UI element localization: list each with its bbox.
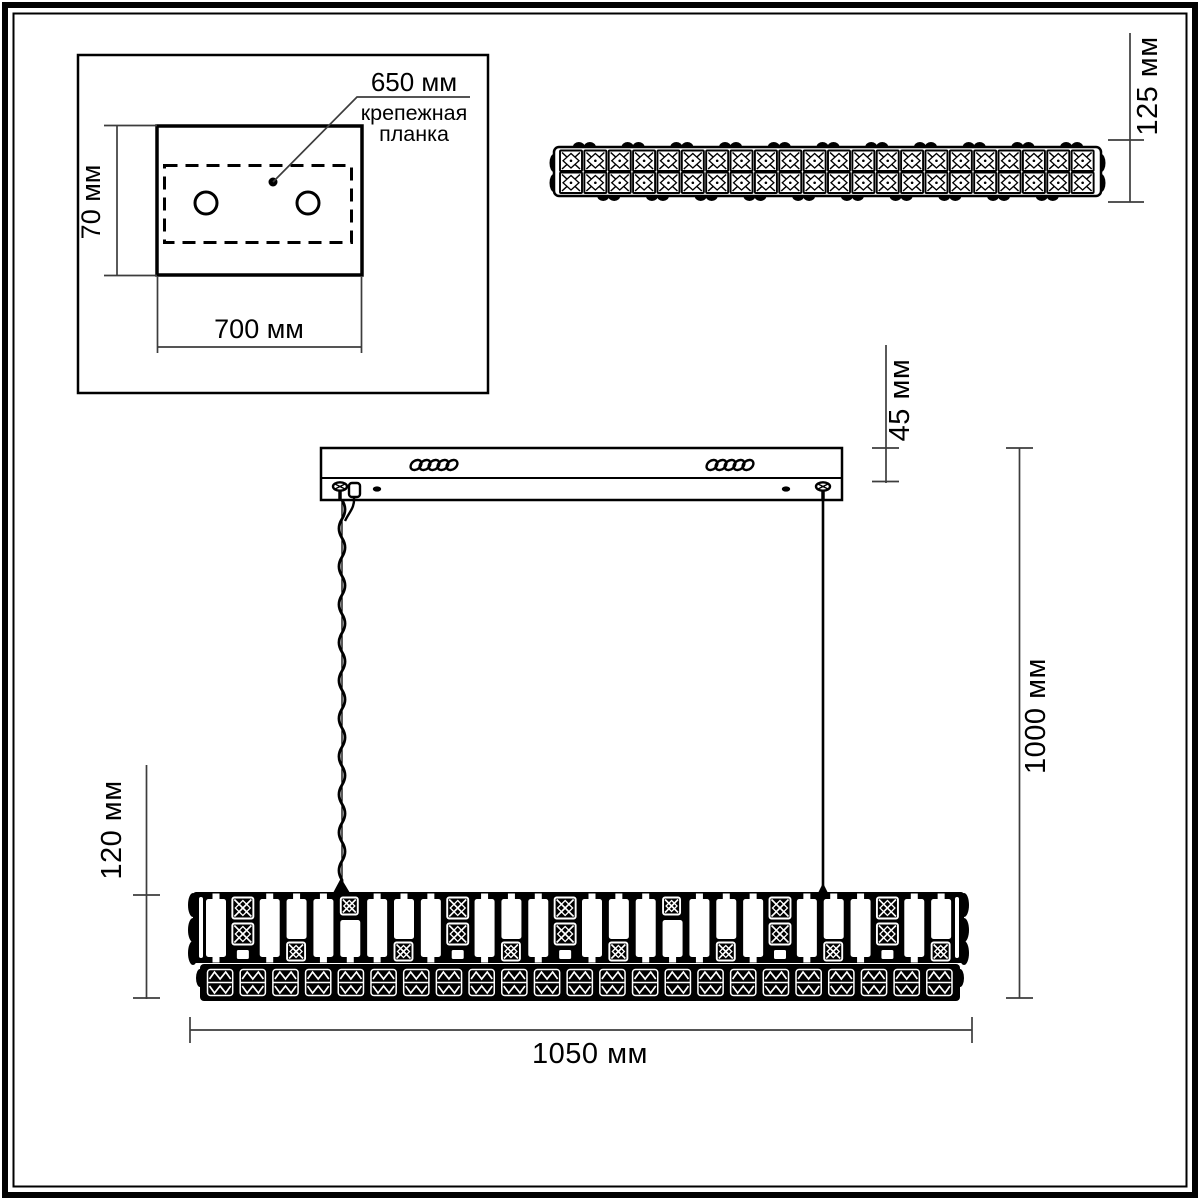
fixture-front-view: 45 мм 1000 мм 120 мм 1050 мм [96,345,1052,1070]
prism-tab [642,894,649,901]
crystal-cell [447,898,468,919]
crystal-cell [633,173,655,194]
mounting-plate-panel: 650 мм крепежная планка 70 мм 700 мм [76,55,488,393]
prism-stub [452,950,464,959]
canopy-height-dim-label: 45 мм [884,359,916,442]
crystal-cell [303,967,333,998]
prism-slot [689,899,709,957]
prism-tab [481,894,488,901]
prism-tab [696,894,703,901]
crystal-cell [232,898,253,919]
prism-slot [904,899,924,957]
crystal-cell [270,967,300,998]
crystal-cell [609,151,631,172]
prism-stub [559,950,571,959]
canopy-width-label: 700 мм [214,314,304,344]
crystal-cell [779,173,801,194]
prism-slot [313,899,333,957]
pendant-light-dimension-drawing: 650 мм крепежная планка 70 мм 700 мм 125… [0,0,1200,1200]
crystal-cell [560,151,582,172]
crystal-cell [901,151,923,172]
crystal-cell [755,173,777,194]
crystal-cell [395,943,413,961]
prism-tab [830,894,837,901]
crystal-cell [467,967,497,998]
crystal-cell [609,173,631,194]
crystal-cell [877,898,898,919]
crystal-cell [663,967,693,998]
crystal-cell [852,173,874,194]
crystal-cell [761,967,791,998]
screw-hole-right [297,192,319,214]
prism-tab [911,894,918,901]
prism-tab [401,894,408,901]
crystal-cell [999,151,1021,172]
prism-slot [582,899,602,957]
prism-stub [774,950,786,959]
prism-slot [367,899,387,957]
prism-tab [213,894,220,901]
crystal-cell [447,924,468,945]
crystal-cell [657,173,679,194]
crystal-cell [731,173,753,194]
crystal-cell [584,173,606,194]
crystal-cell [532,967,562,998]
crystal-cell [1023,173,1045,194]
prism-slot [421,899,441,957]
crystal-cell [706,173,728,194]
crystal-cell [695,967,725,998]
crystal-cell [824,943,842,961]
prism-tab [535,956,542,963]
prism-tab [266,894,273,901]
ceiling-canopy [321,448,842,500]
crystal-cell [755,151,777,172]
prism-slot [636,899,656,957]
crystal-cell [663,898,680,915]
crystal-cell [565,967,595,998]
crystal-cell [401,967,431,998]
lower-band-crystal-pattern [205,967,955,998]
prism-tab [938,894,945,901]
crystal-cell [682,173,704,194]
prism-tab [696,956,703,963]
band-edge-highlight [955,897,959,958]
prism-slot [824,899,844,939]
prism-tab [374,894,381,901]
crystal-cell [828,151,850,172]
crystal-cell [1072,151,1094,172]
prism-slot [716,899,736,939]
rivet-dot-left [373,486,381,491]
crystal-cell [852,151,874,172]
prism-tab [266,956,273,963]
prism-tab [589,894,596,901]
crystal-cell [804,151,826,172]
cord-fitting [349,483,360,497]
crystal-cell [336,967,366,998]
prism-slot [663,920,683,957]
prism-tab [427,956,434,963]
prism-tab [347,956,354,963]
fixture-side-view: 125 мм [550,33,1165,202]
fixture-width-dim-label: 1050 мм [532,1038,648,1070]
prism-tab [750,956,757,963]
suspension-height-dim-label: 1000 мм [1020,658,1052,774]
prism-slot [609,899,629,939]
crystal-cell [770,898,791,919]
prism-tab [508,894,515,901]
prism-tab [481,956,488,963]
prism-slot [287,899,307,939]
crystal-cell [633,151,655,172]
prism-tab [803,894,810,901]
prism-slot [340,920,360,957]
crystal-cell [341,898,358,915]
prism-tab [750,894,757,901]
prism-tab [669,956,676,963]
crystal-cell [770,924,791,945]
crystal-cell [731,151,753,172]
crystal-cell [1072,173,1094,194]
crystal-cell [368,967,398,998]
prism-slot [851,899,871,957]
prism-tab [213,956,220,963]
prism-stub [237,950,249,959]
crystal-cell [925,151,947,172]
prism-tab [723,894,730,901]
strap-name-line2: планка [379,122,449,146]
crystal-cell [974,151,996,172]
crystal-cell [877,151,899,172]
crystal-cell [826,967,856,998]
crystal-cell [499,967,529,998]
crystal-cell [932,943,950,961]
crystal-cell [1047,173,1069,194]
crystal-cell [779,151,801,172]
prism-tab [803,956,810,963]
crystal-cell [609,943,627,961]
crystal-cell [950,151,972,172]
crystal-cell [555,898,576,919]
crystal-cell [1047,151,1069,172]
prism-tab [427,894,434,901]
crystal-cell [925,173,947,194]
canopy-height-label: 70 мм [76,165,106,240]
prism-slot [743,899,763,957]
prism-tab [374,956,381,963]
crystal-cell [804,173,826,194]
rivet-dot-right [782,486,790,491]
crystal-cell [794,967,824,998]
crystal-cell [630,967,660,998]
prism-tab [642,956,649,963]
prism-slot [475,899,495,957]
side-view-height-label: 125 мм [1132,36,1164,135]
crystal-cell [434,967,464,998]
prism-slot [931,899,951,939]
wire-entry-flare [818,883,828,893]
prism-tab [857,894,864,901]
cord-entry-flare [333,878,350,893]
crystal-cell [555,924,576,945]
prism-slot [797,899,817,957]
crystal-cell [974,173,996,194]
prism-slot [206,899,226,957]
crystal-cell [232,924,253,945]
technical-drawing-page: 650 мм крепежная планка 70 мм 700 мм 125… [0,0,1200,1200]
crystal-cell [728,967,758,998]
prism-tab [615,894,622,901]
crystal-cell [999,173,1021,194]
crystal-cell [859,967,889,998]
prism-tab [911,956,918,963]
prism-tab [857,956,864,963]
crystal-cell [597,967,627,998]
prism-slot [528,899,548,957]
crystal-cell [892,967,922,998]
prism-slot [394,899,414,939]
crystal-cell [717,943,735,961]
prism-slot [501,899,521,939]
crystal-cell [901,173,923,194]
crystal-cell [877,924,898,945]
crystal-cell [238,967,268,998]
prism-tab [320,894,327,901]
crystal-cell [584,151,606,172]
crystal-cell [877,173,899,194]
band-edge-highlight [199,897,203,958]
crystal-cell [657,151,679,172]
crystal-cell [502,943,520,961]
fixture-upper-band [193,892,964,963]
prism-slot [260,899,280,957]
crystal-cell [924,967,954,998]
canopy-outline [157,126,362,275]
crystal-cell [560,173,582,194]
prism-tab [535,894,542,901]
crystal-cell [287,943,305,961]
prism-tab [589,956,596,963]
screw-hole-left [195,192,217,214]
prism-tab [293,894,300,901]
crystal-cell [950,173,972,194]
prism-tab [320,956,327,963]
strap-spacing-label: 650 мм [371,67,457,97]
prism-stub [881,950,893,959]
crystal-cell [828,173,850,194]
crystal-cell [205,967,235,998]
fixture-height-dim-label: 120 мм [96,780,128,879]
crystal-cell [1023,151,1045,172]
crystal-cell [706,151,728,172]
crystal-cell [682,151,704,172]
